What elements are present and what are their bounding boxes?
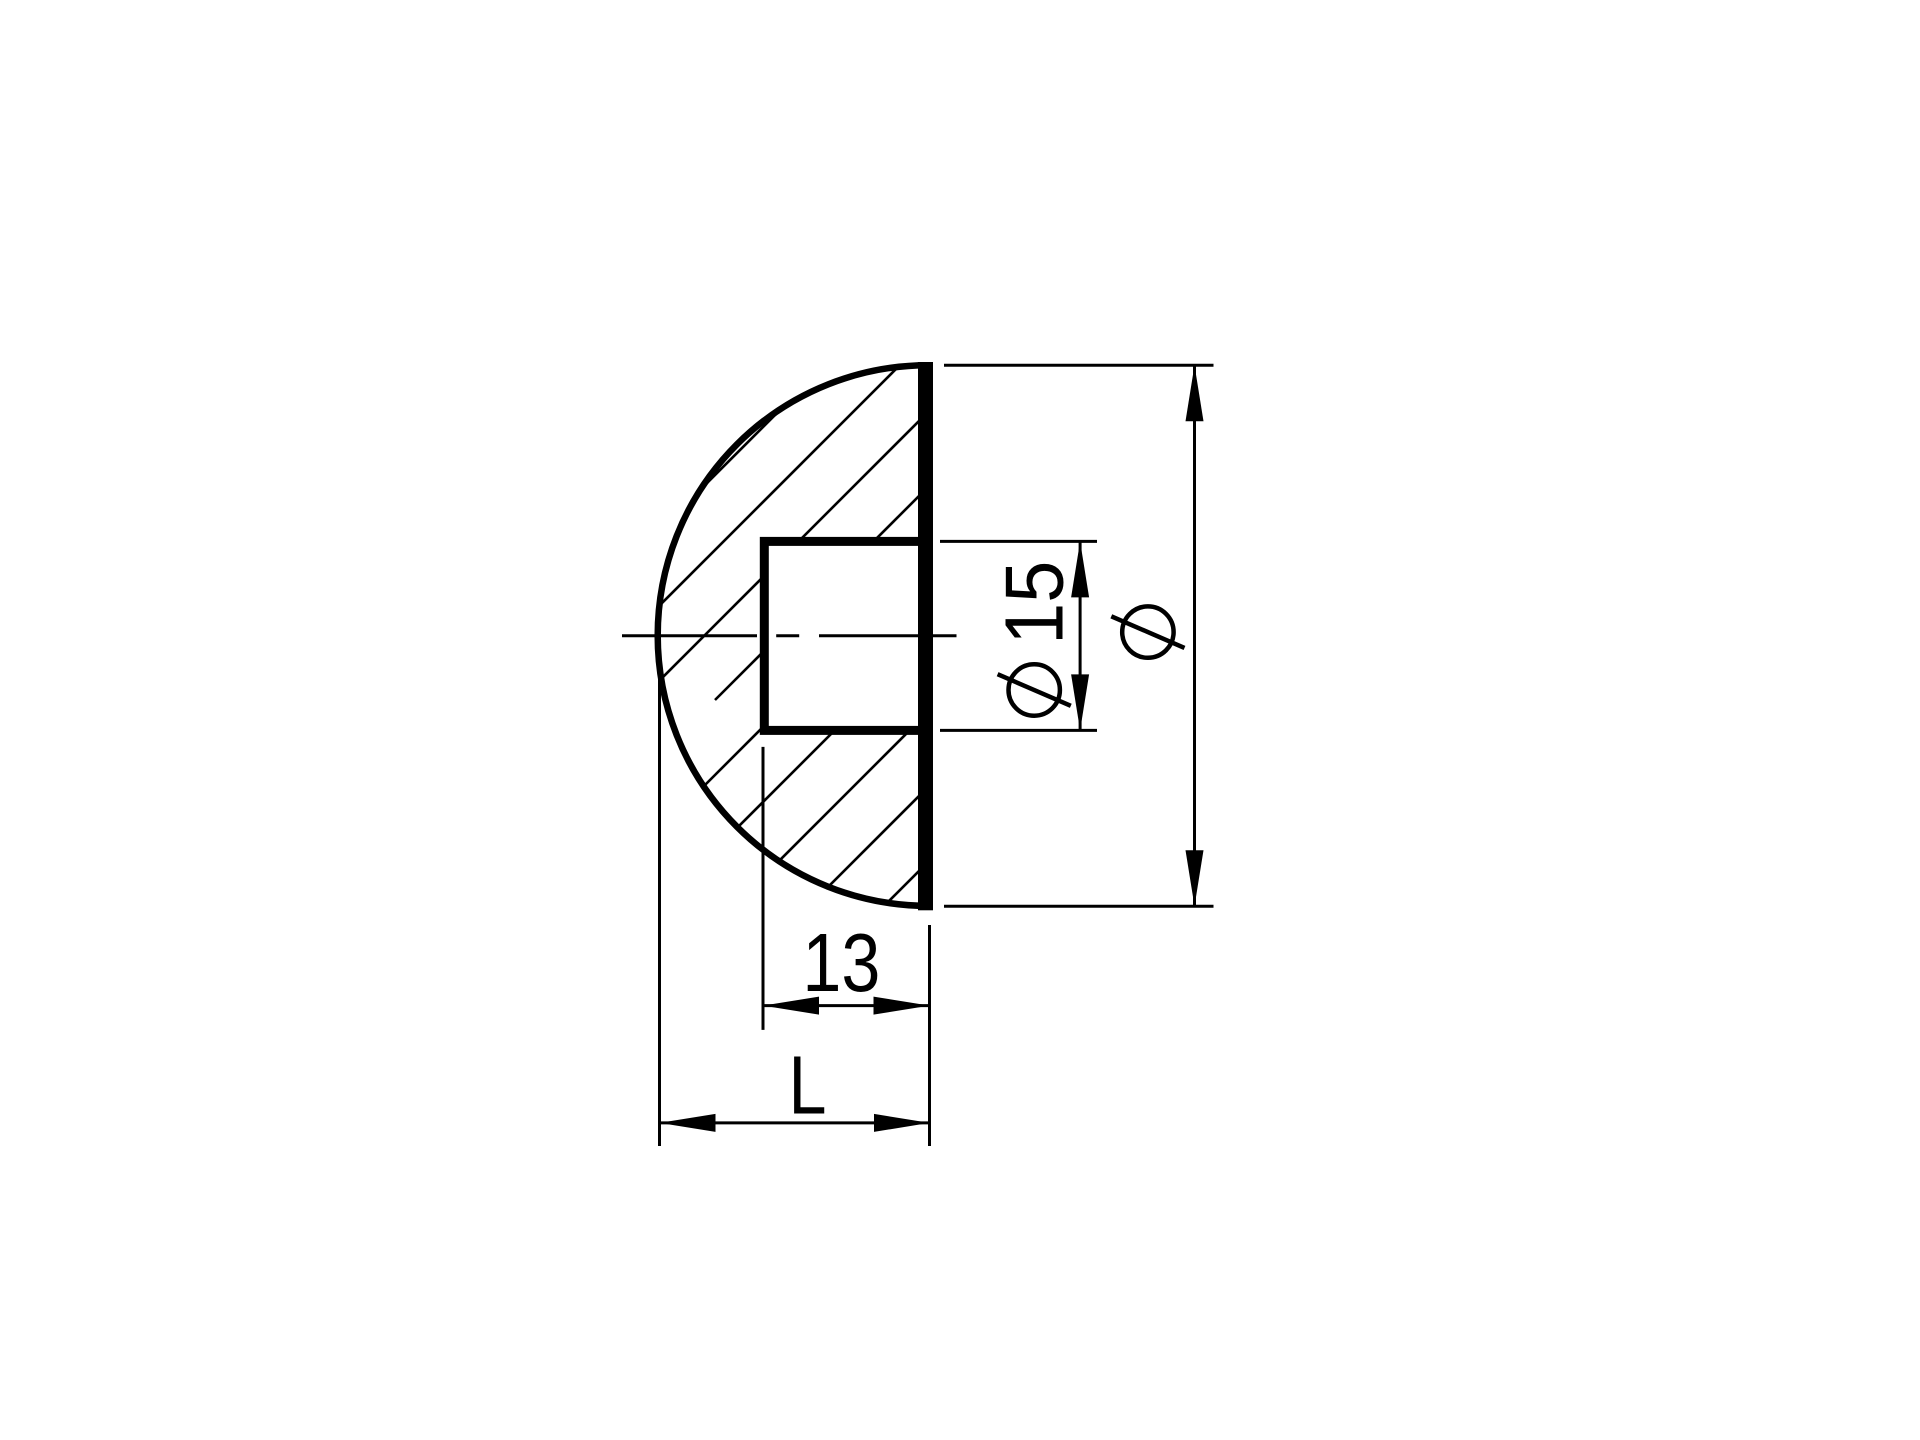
svg-text:L: L (789, 1039, 827, 1132)
svg-text:15: 15 (988, 561, 1081, 645)
svg-text:13: 13 (802, 916, 880, 1009)
